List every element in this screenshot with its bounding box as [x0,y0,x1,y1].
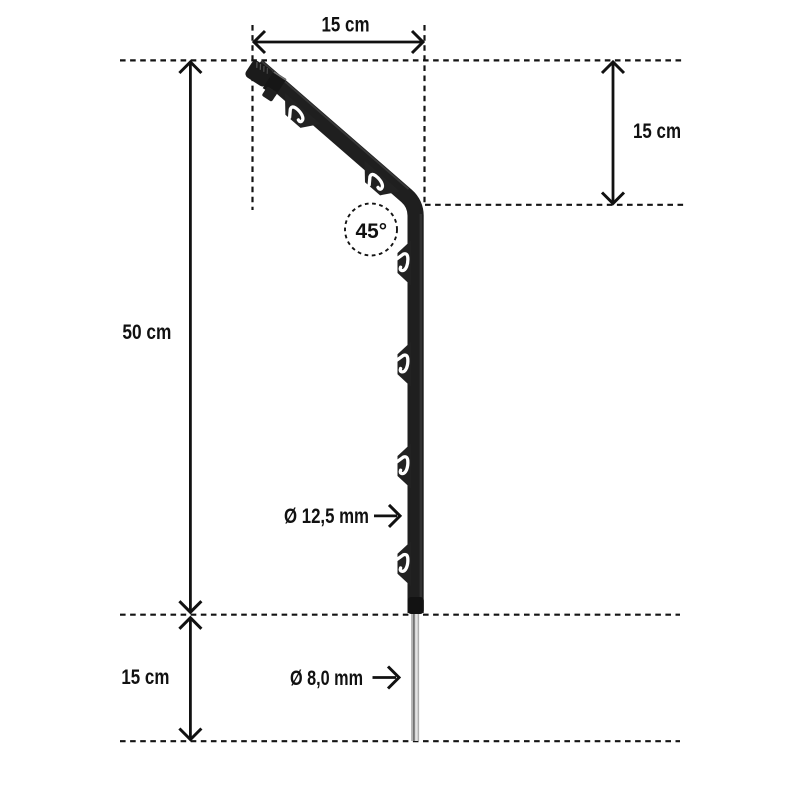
svg-text:15 cm: 15 cm [322,14,370,37]
svg-text:Ø 12,5 mm: Ø 12,5 mm [284,505,369,528]
svg-text:45°: 45° [356,220,388,243]
svg-text:15 cm: 15 cm [121,666,169,689]
svg-text:15 cm: 15 cm [633,120,681,143]
svg-text:50 cm: 50 cm [122,321,171,344]
svg-text:Ø 8,0 mm: Ø 8,0 mm [290,667,363,690]
